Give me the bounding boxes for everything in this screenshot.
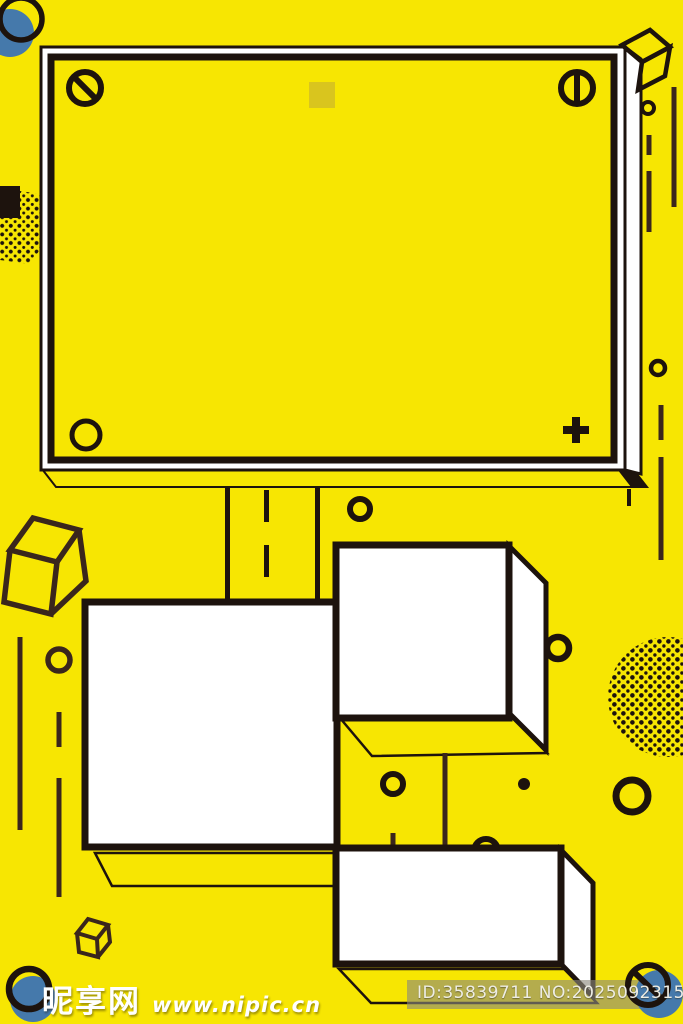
watermark-image-id: ID:35839711 NO:20250923154347266106 [417,983,683,1003]
white-box-large [85,602,360,886]
black-dot [518,778,530,790]
muted-yellow-square [309,82,335,108]
poster-art [0,0,683,1024]
watermark-site-name: 昵享网 [42,976,141,1021]
billboard-sign [41,47,647,506]
watermark-left: 昵享网 www.nipic.cn [42,976,321,1021]
black-square-left [0,186,20,218]
billboard-panel [51,57,614,460]
poster-canvas: 昵享网 www.nipic.cn ID:35839711 NO:20250923… [0,0,683,1024]
billboard-side-face [625,47,641,474]
watermark-site-url: www.nipic.cn [152,993,321,1017]
